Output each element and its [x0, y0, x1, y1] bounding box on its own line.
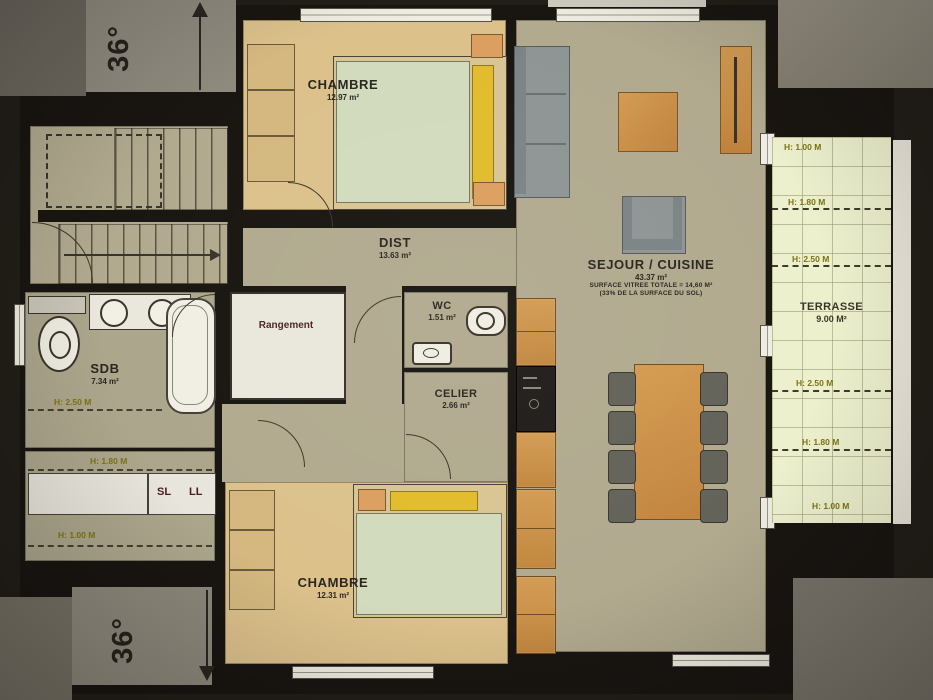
height-label-180: H: 1.80 M: [90, 456, 127, 466]
stair-direction-arrowhead: [210, 249, 221, 261]
appliance-handle: [523, 387, 541, 389]
kitchen-appliance-stack: [516, 366, 556, 432]
sink-wc: [412, 342, 452, 365]
room-name: TERRASSE: [772, 301, 891, 314]
window-chambre2: [292, 666, 434, 679]
room-name: CELIER: [404, 388, 508, 401]
dining-chair: [608, 489, 636, 523]
terrace-dash: [772, 265, 891, 267]
label-sejour: SEJOUR / CUISINE 43.37 m² SURFACE VITREE…: [556, 258, 746, 297]
toilet-bowl: [49, 331, 71, 359]
window-sejour-top: [556, 8, 700, 22]
armchair: [622, 196, 686, 254]
room-area: 43.37 m²: [556, 273, 746, 282]
terrace-height-bottom-100: H: 1.00 M: [812, 501, 849, 511]
slope-label-bottom: 36°: [88, 608, 158, 672]
room-note-ratio: (33% DE LA SURFACE DU SOL): [556, 290, 746, 297]
dining-table: [634, 364, 704, 520]
stair-divider: [38, 210, 228, 222]
dining-chair: [700, 489, 728, 523]
room-area: 7.34 m²: [50, 377, 160, 386]
height-dash-250: [28, 409, 162, 411]
dining-chair: [608, 450, 636, 484]
terrace-height-top-250: H: 2.50 M: [792, 254, 829, 264]
height-label-250: H: 2.50 M: [54, 397, 91, 407]
laundry-divider: [147, 474, 149, 514]
cabinet-divider: [517, 331, 555, 332]
wardrobe-chambre1: [247, 44, 295, 182]
kitchen-cabinet-mid: [516, 432, 556, 488]
armchair-arm: [673, 197, 682, 250]
toilet-bowl: [476, 312, 495, 330]
terrace-dash: [772, 390, 891, 392]
sofa-cushion-line: [526, 93, 566, 95]
room-name: WC: [406, 300, 478, 313]
height-label-100: H: 1.00 M: [58, 530, 95, 540]
kitchen-cabinet-upper: [516, 298, 556, 366]
laundry-counter: SL LL: [28, 473, 216, 515]
washer-label-sl: SL: [157, 486, 171, 498]
room-rangement: Rangement: [230, 292, 346, 400]
washer-label-ll: LL: [189, 486, 202, 498]
slope-angle-top: 36°: [102, 25, 135, 72]
terrace-outer-wall: [893, 140, 911, 524]
terrace-dash: [772, 449, 891, 451]
room-area: 2.66 m²: [404, 401, 508, 410]
room-area: 12.31 m²: [253, 591, 413, 600]
window-chambre1: [300, 8, 492, 22]
label-rangement: Rangement: [232, 320, 340, 332]
dining-chair: [608, 372, 636, 406]
terrace-height-bottom-180: H: 1.80 M: [802, 437, 839, 447]
height-dash-180: [28, 469, 212, 471]
window-sejour-bottom: [672, 654, 770, 667]
height-dash-100: [28, 545, 212, 547]
label-sdb: SDB 7.34 m²: [50, 362, 160, 386]
armchair-arm: [623, 197, 632, 250]
slope-label-top: 36°: [84, 16, 154, 80]
slope-arrow-top-head: [192, 2, 208, 17]
floorplan-photo: 36° 36° CHAMBRE 12.97 m²: [0, 0, 933, 700]
wardrobe-cell: [229, 490, 275, 530]
room-area: 9.00 M²: [772, 314, 891, 324]
appliance-handle: [523, 377, 537, 379]
sink-basin: [423, 348, 439, 358]
label-chambre1: CHAMBRE 12.97 m²: [258, 78, 428, 102]
sink-basin: [100, 299, 128, 327]
sofa: [514, 46, 570, 198]
slope-arrow-bottom-head: [199, 666, 215, 681]
slope-arrow-bottom-line: [206, 590, 208, 668]
terrace-height-top-100: H: 1.00 M: [784, 142, 821, 152]
terrace-height-top-180: H: 1.80 M: [788, 197, 825, 207]
bed-pillow: [390, 491, 478, 511]
room-name: SEJOUR / CUISINE: [556, 258, 746, 273]
room-wc: WC 1.51 m²: [404, 292, 508, 368]
room-chambre1: CHAMBRE 12.97 m²: [243, 20, 506, 210]
corner-panel-bottom-right: [793, 578, 933, 700]
wardrobe-cell: [229, 530, 275, 570]
kitchen-cabinet-lower: [516, 489, 556, 569]
stair-headroom-dashed-box: [46, 134, 162, 208]
room-dist-lower: [222, 404, 404, 482]
room-name: Rangement: [259, 320, 313, 331]
room-name: DIST: [330, 236, 460, 251]
room-terrasse: H: 1.00 M H: 1.80 M H: 2.50 M TERRASSE 9…: [772, 137, 891, 523]
label-celier: CELIER 2.66 m²: [404, 388, 508, 410]
dining-chair: [700, 450, 728, 484]
room-chambre2: CHAMBRE 12.31 m²: [225, 482, 508, 664]
appliance-knob: [529, 399, 539, 409]
label-dist: DIST 13.63 m²: [330, 236, 460, 260]
dining-chair: [700, 411, 728, 445]
dining-chair: [700, 372, 728, 406]
label-terrasse: TERRASSE 9.00 M²: [772, 301, 891, 324]
kitchen-cabinet-bottom: [516, 576, 556, 654]
toilet-wc: [466, 306, 506, 336]
room-note-glazing: SURFACE VITREE TOTALE = 14,60 M²: [556, 282, 746, 289]
room-name: CHAMBRE: [258, 78, 428, 93]
window-sdb-left: [14, 304, 25, 366]
corner-panel-top-right: [778, 0, 933, 88]
terrace-height-bottom-250: H: 2.50 M: [796, 378, 833, 388]
sofa-backrest: [515, 47, 526, 194]
cabinet-divider: [517, 528, 555, 529]
room-area: 13.63 m²: [330, 251, 460, 260]
sofa-cushion-line: [526, 143, 566, 145]
slope-angle-bottom: 36°: [106, 617, 139, 664]
tv-screen: [734, 57, 737, 143]
bed-pillow: [472, 65, 494, 199]
balcony-rail-top: [548, 0, 706, 7]
toilet-tank-sdb: [28, 296, 86, 314]
nightstand: [473, 182, 505, 206]
tv-sideboard: [720, 46, 752, 154]
room-area: 12.97 m²: [258, 93, 428, 102]
nightstand: [471, 34, 503, 58]
terrace-dash: [772, 208, 891, 210]
corner-panel-bottom-left: [0, 597, 72, 700]
dining-chair: [608, 411, 636, 445]
nightstand: [358, 489, 386, 511]
coffee-table: [618, 92, 678, 152]
room-name: SDB: [50, 362, 160, 377]
label-chambre2: CHAMBRE 12.31 m²: [253, 576, 413, 600]
wardrobe-cell: [247, 136, 295, 182]
cabinet-divider: [517, 614, 555, 615]
slope-arrow-top-line: [199, 12, 201, 90]
corner-panel-top-left: [0, 0, 86, 96]
room-name: CHAMBRE: [253, 576, 413, 591]
